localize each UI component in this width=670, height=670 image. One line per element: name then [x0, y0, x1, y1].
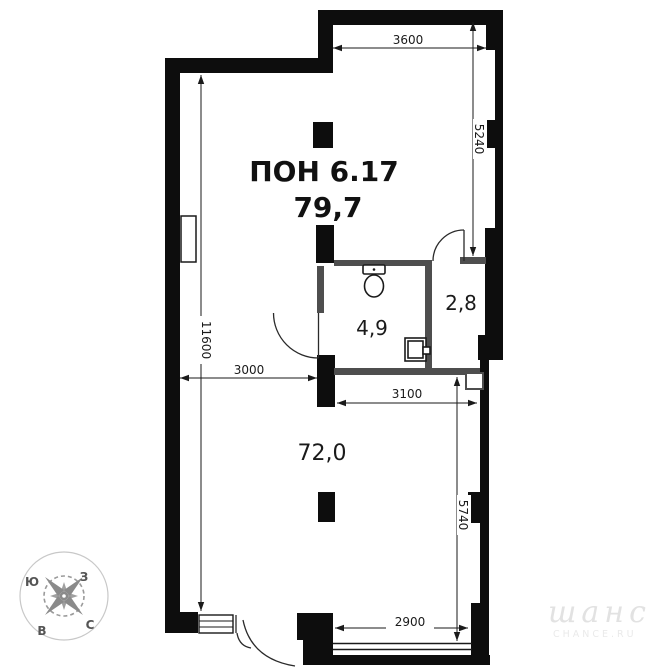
room-area-bathroom: 4,9 [356, 316, 388, 340]
compass-rose: Ю З В С [20, 552, 108, 640]
watermark: шанс CHANCE.RU [548, 595, 651, 640]
wall-bottom-left [165, 612, 198, 633]
wall-right-pier-3 [468, 492, 489, 523]
door-swing-bathroom [274, 313, 319, 358]
wall-top-left [165, 58, 333, 73]
column [316, 225, 334, 263]
partition-bathroom-left [317, 266, 324, 313]
interior-partitions [317, 257, 486, 375]
wall-right-step [478, 335, 503, 360]
dimension-label: 5240 [472, 124, 486, 155]
dimension-2900: 2900 [335, 615, 468, 631]
dimension-label: 5740 [456, 500, 470, 531]
dimension-label: 3000 [234, 363, 265, 377]
door-swing-entrance [243, 620, 295, 666]
outer-walls [165, 10, 503, 665]
dimension-11600: 11600 [198, 75, 214, 611]
duct-box [466, 373, 483, 389]
dimension-5240: 5240 [470, 22, 487, 256]
watermark-caption: CHANCE.RU [553, 629, 637, 640]
wall-right-pier-1 [485, 120, 503, 148]
room-area-main: 72,0 [298, 441, 347, 466]
dimension-label: 3100 [392, 387, 423, 401]
dimension-3600: 3600 [333, 33, 486, 51]
room-area-storage: 2,8 [445, 291, 477, 315]
column [313, 122, 333, 148]
column [318, 492, 335, 522]
dimension-label: 3600 [393, 33, 424, 47]
compass-letter-south: Ю [25, 575, 39, 589]
sink-icon [405, 338, 430, 361]
dimension-5740: 5740 [454, 377, 471, 641]
wall-left [165, 58, 180, 633]
door-swing-storage [433, 230, 464, 261]
door-swing-entrance-small [237, 633, 251, 648]
wall-niche [181, 216, 196, 262]
compass-letter-east: В [37, 624, 46, 638]
dimension-label: 2900 [395, 615, 426, 629]
bottom-window [333, 644, 472, 650]
entrance-sidelight [199, 615, 233, 633]
partition-bathroom-bottom [334, 368, 480, 375]
dimension-3100: 3100 [337, 387, 477, 406]
unit-total-area: 79,7 [293, 191, 362, 224]
wall-right-pier-2 [485, 228, 503, 263]
wall-entrance-pier-lower [303, 640, 333, 665]
compass-letter-west: З [80, 570, 89, 584]
column [317, 355, 335, 407]
watermark-script: шанс [548, 595, 651, 630]
wall-right-window-strip-lower [480, 360, 489, 603]
wall-entrance-pier-upper [297, 613, 333, 640]
entrance-door-unit [199, 615, 295, 666]
compass-letter-north: С [86, 618, 95, 632]
toilet-icon [363, 265, 385, 297]
wall-top-right [318, 10, 503, 25]
compass-star-icon [45, 577, 83, 615]
unit-title: ПОН 6.17 [249, 155, 399, 188]
floor-plan-svg: 3600 5240 11600 3000 3100 [0, 0, 670, 670]
wall-right-storage [485, 263, 503, 347]
floor-plan: 3600 5240 11600 3000 3100 [0, 0, 670, 670]
dimension-label: 11600 [199, 321, 213, 359]
